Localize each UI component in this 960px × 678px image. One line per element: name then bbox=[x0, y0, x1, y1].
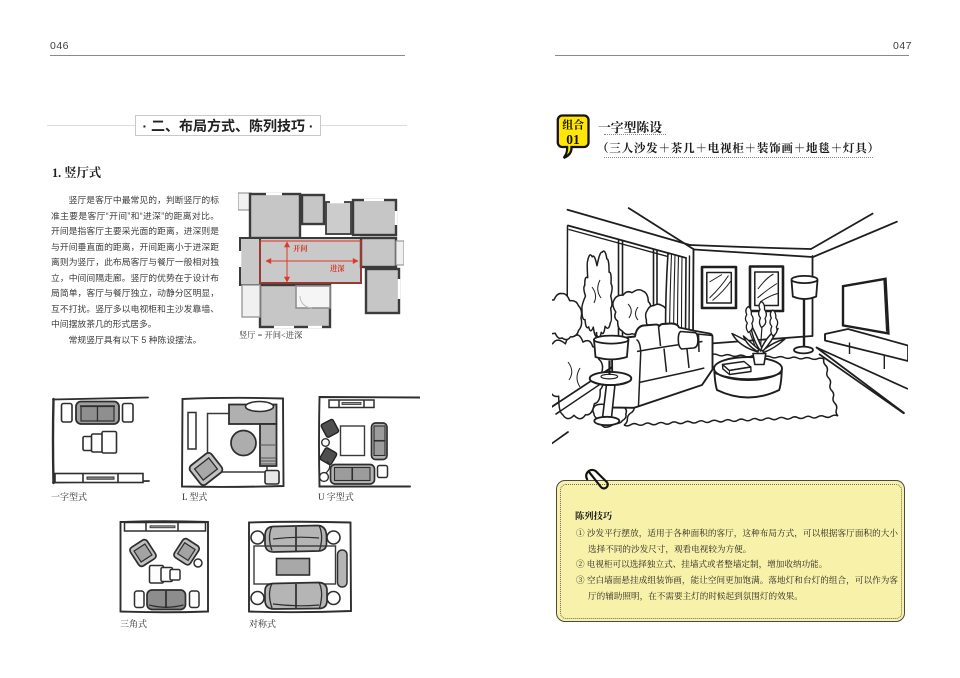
svg-text:组合: 组合 bbox=[562, 118, 584, 132]
svg-text:进深: 进深 bbox=[330, 264, 345, 273]
svg-text:01: 01 bbox=[566, 132, 580, 147]
svg-text:开间: 开间 bbox=[293, 244, 308, 253]
